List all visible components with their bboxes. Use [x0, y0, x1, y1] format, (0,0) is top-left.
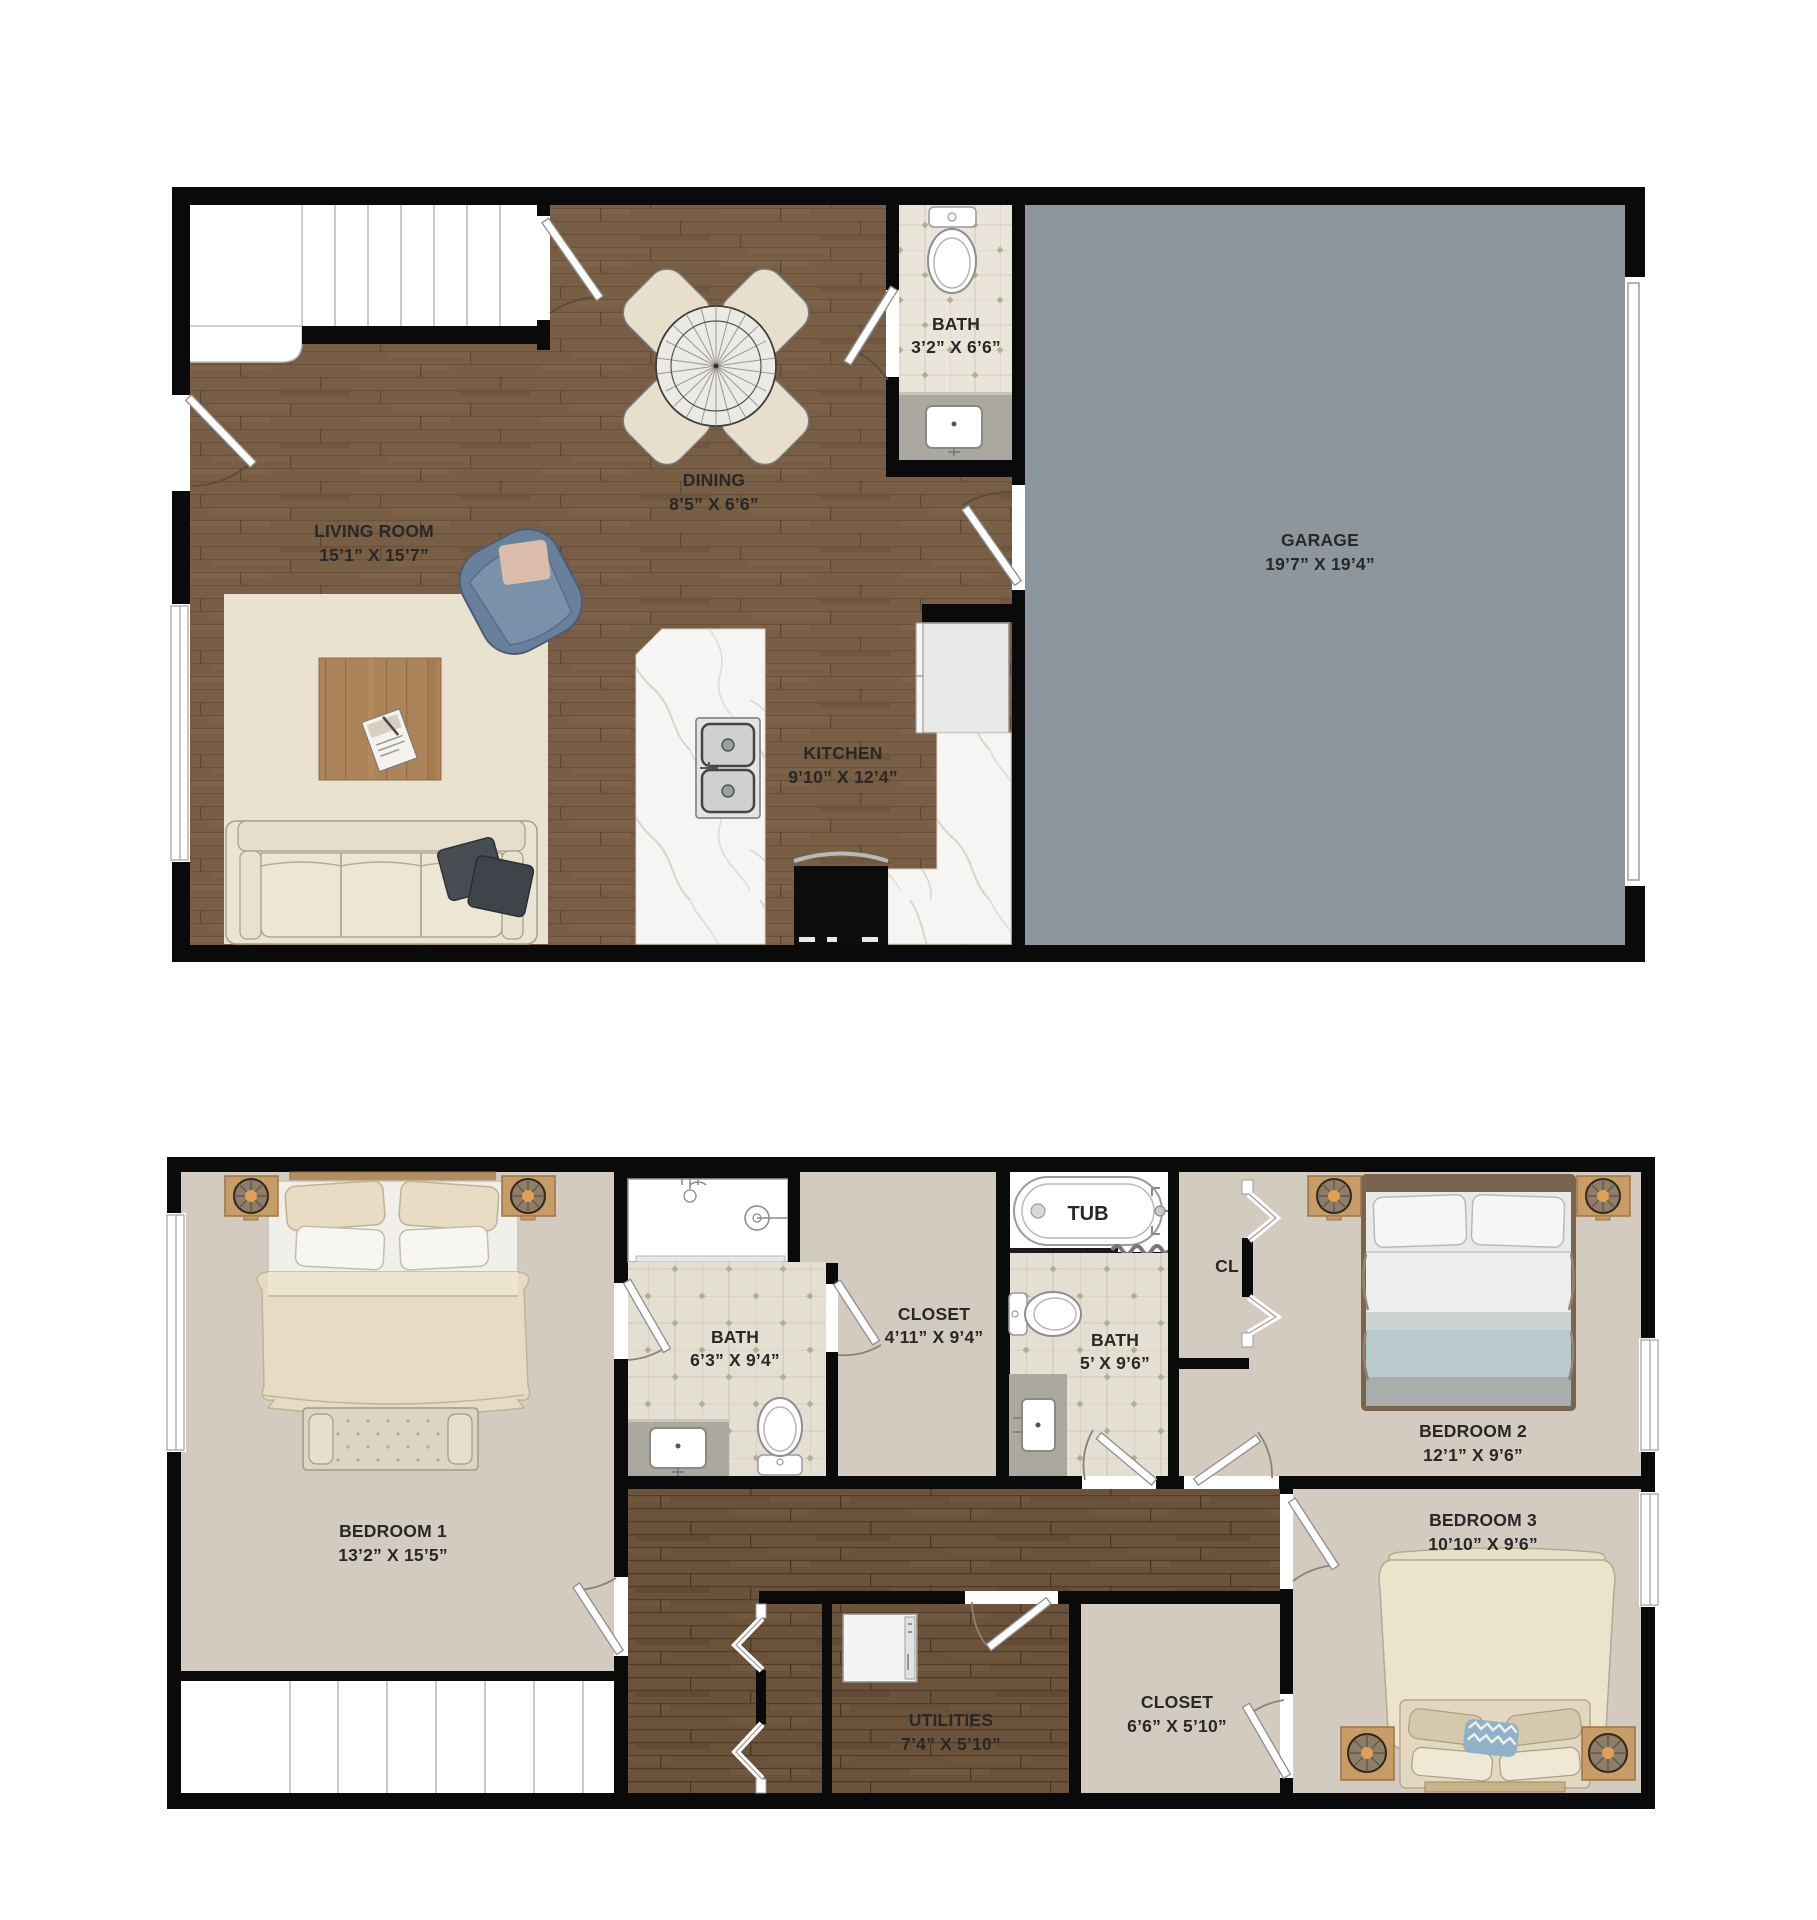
- svg-text:LIVING ROOM: LIVING ROOM: [314, 521, 434, 541]
- svg-text:8’5” X 6’6”: 8’5” X 6’6”: [669, 494, 759, 514]
- svg-text:KITCHEN: KITCHEN: [803, 743, 882, 763]
- svg-text:5’ X 9’6”: 5’ X 9’6”: [1080, 1353, 1150, 1373]
- svg-text:4’11” X 9’4”: 4’11” X 9’4”: [885, 1327, 984, 1347]
- svg-text:DINING: DINING: [683, 470, 745, 490]
- svg-text:GARAGE: GARAGE: [1281, 530, 1359, 550]
- svg-text:BATH: BATH: [1091, 1330, 1139, 1350]
- svg-text:UTILITIES: UTILITIES: [909, 1710, 993, 1730]
- svg-text:10’10” X 9’6”: 10’10” X 9’6”: [1428, 1534, 1538, 1554]
- svg-text:BEDROOM 3: BEDROOM 3: [1429, 1510, 1537, 1530]
- svg-text:6’3” X 9’4”: 6’3” X 9’4”: [690, 1350, 780, 1370]
- svg-text:BATH: BATH: [932, 314, 980, 334]
- svg-text:CLOSET: CLOSET: [898, 1304, 970, 1324]
- svg-text:19’7” X 19’4”: 19’7” X 19’4”: [1265, 554, 1375, 574]
- svg-text:13’2” X 15’5”: 13’2” X 15’5”: [338, 1545, 448, 1565]
- svg-text:CL: CL: [1215, 1256, 1239, 1276]
- svg-text:7’4” X 5’10”: 7’4” X 5’10”: [901, 1734, 1001, 1754]
- svg-text:TUB: TUB: [1067, 1203, 1108, 1225]
- svg-text:BEDROOM 1: BEDROOM 1: [339, 1521, 447, 1541]
- svg-text:BATH: BATH: [711, 1327, 759, 1347]
- svg-text:15’1” X 15’7”: 15’1” X 15’7”: [319, 545, 429, 565]
- svg-text:9’10” X 12’4”: 9’10” X 12’4”: [788, 767, 898, 787]
- svg-text:6’6” X 5’10”: 6’6” X 5’10”: [1127, 1716, 1227, 1736]
- svg-text:12’1” X 9’6”: 12’1” X 9’6”: [1423, 1445, 1523, 1465]
- svg-text:BEDROOM 2: BEDROOM 2: [1419, 1421, 1527, 1441]
- svg-text:3’2” X 6’6”: 3’2” X 6’6”: [911, 337, 1001, 357]
- svg-text:CLOSET: CLOSET: [1141, 1692, 1213, 1712]
